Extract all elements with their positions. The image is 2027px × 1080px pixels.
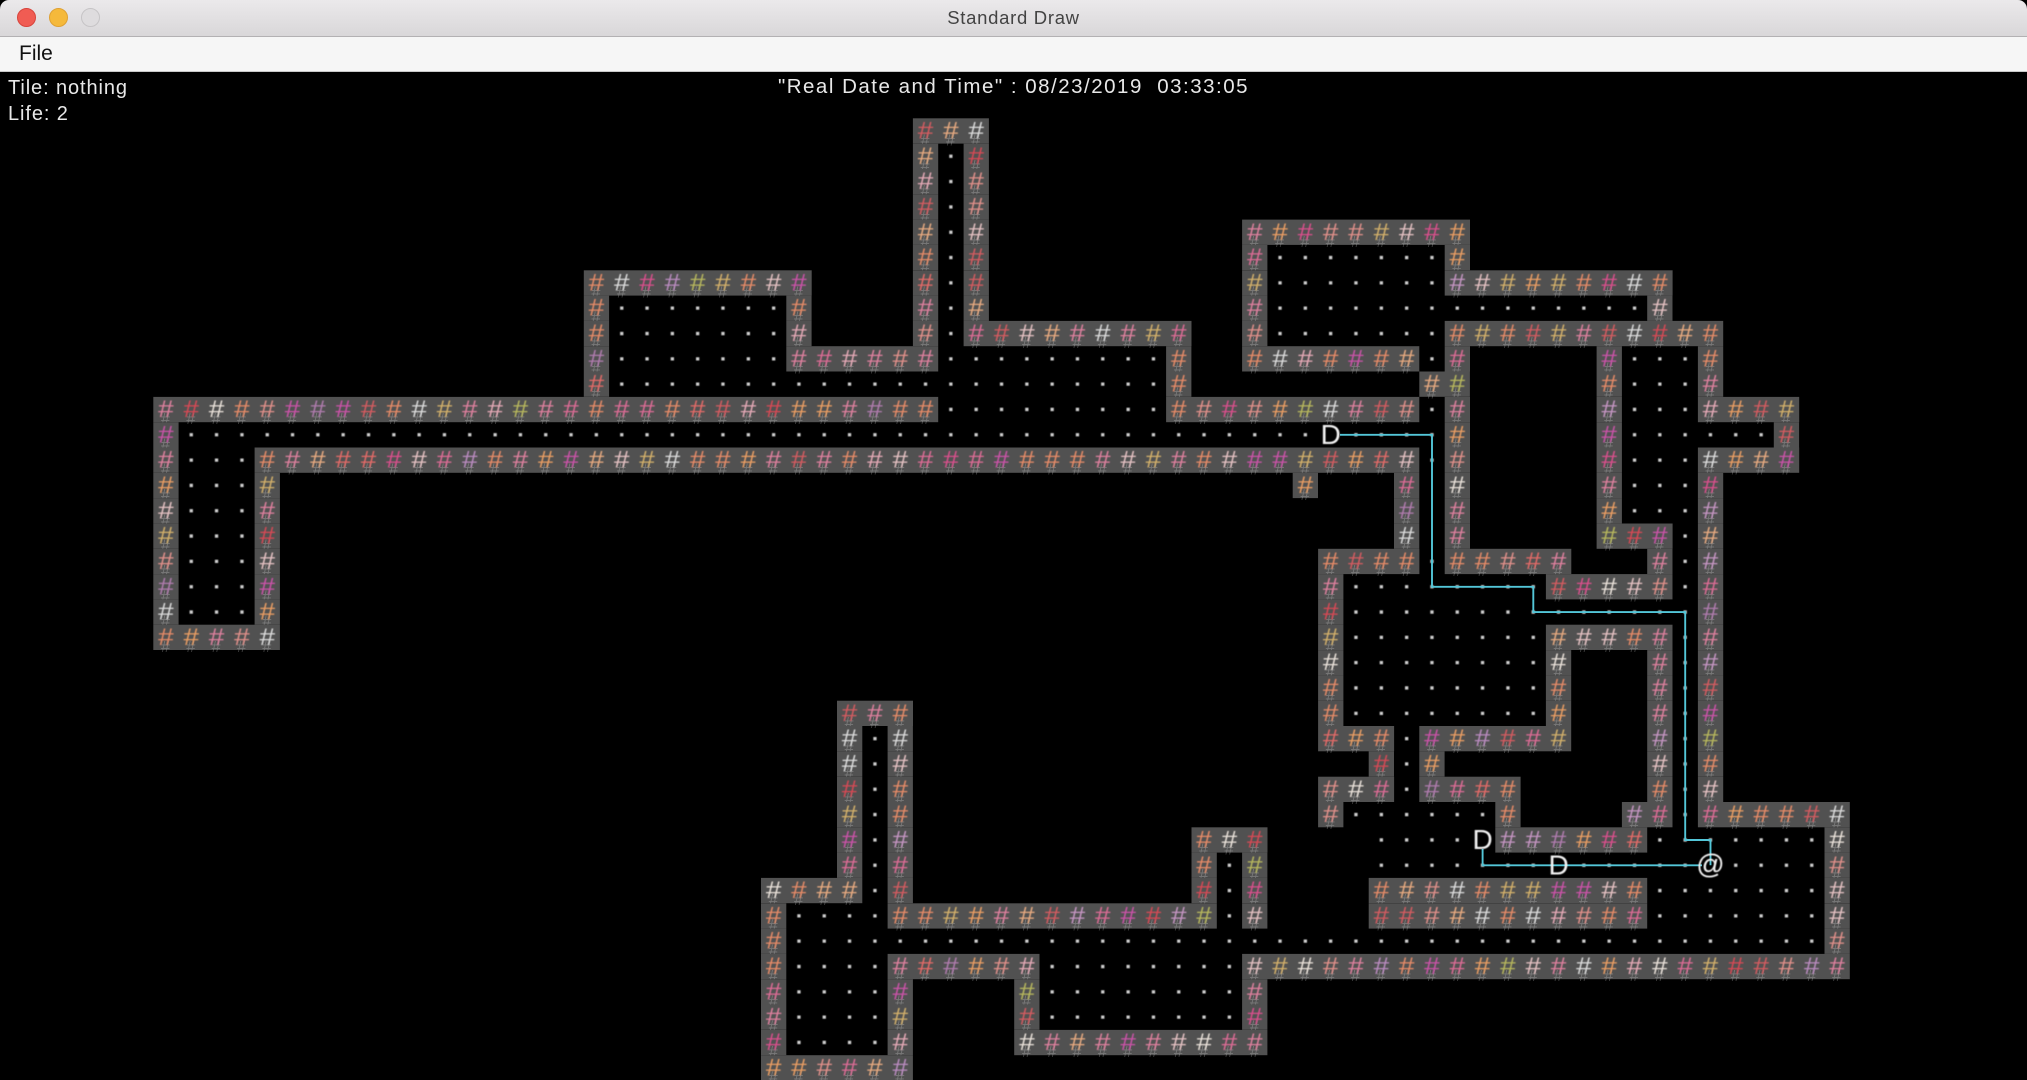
svg-text:#: # (1703, 447, 1719, 474)
svg-text:#: # (1551, 548, 1567, 575)
svg-text:#: # (1652, 776, 1668, 803)
svg-text:#: # (1323, 345, 1339, 372)
svg-text:#: # (1348, 953, 1364, 980)
svg-text:#: # (766, 953, 782, 980)
svg-text:#: # (361, 396, 377, 423)
svg-text:#: # (1500, 269, 1516, 296)
svg-text:#: # (1272, 953, 1288, 980)
svg-text:#: # (1070, 1029, 1086, 1056)
svg-text:#: # (893, 345, 909, 372)
svg-text:#: # (1551, 573, 1567, 600)
svg-text:#: # (1247, 219, 1263, 246)
svg-text:#: # (1374, 447, 1390, 474)
svg-text:#: # (1247, 1004, 1263, 1031)
svg-text:#: # (1450, 371, 1466, 398)
svg-text:#: # (1779, 801, 1795, 828)
svg-text:#: # (639, 269, 655, 296)
svg-text:#: # (1171, 320, 1187, 347)
svg-text:#: # (1298, 953, 1314, 980)
svg-text:#: # (1450, 877, 1466, 904)
svg-text:#: # (1601, 953, 1617, 980)
svg-text:#: # (1627, 624, 1643, 651)
svg-text:#: # (1551, 624, 1567, 651)
svg-text:#: # (1247, 345, 1263, 372)
svg-text:#: # (893, 447, 909, 474)
svg-text:#: # (817, 396, 833, 423)
svg-text:#: # (1475, 548, 1491, 575)
svg-text:#: # (994, 320, 1010, 347)
svg-text:#: # (1703, 472, 1719, 499)
svg-text:#: # (1652, 523, 1668, 550)
svg-text:#: # (1500, 725, 1516, 752)
svg-text:#: # (918, 244, 934, 271)
svg-text:#: # (614, 447, 630, 474)
svg-text:#: # (158, 523, 174, 550)
svg-text:#: # (1399, 523, 1415, 550)
svg-text:#: # (1196, 902, 1212, 929)
svg-text:#: # (260, 447, 276, 474)
svg-text:#: # (158, 447, 174, 474)
svg-text:#: # (158, 573, 174, 600)
svg-text:#: # (842, 447, 858, 474)
svg-text:#: # (1095, 1029, 1111, 1056)
svg-text:#: # (1019, 978, 1035, 1005)
svg-text:#: # (1627, 953, 1643, 980)
svg-text:#: # (1196, 827, 1212, 854)
svg-text:#: # (1450, 472, 1466, 499)
svg-text:#: # (386, 447, 402, 474)
svg-text:#: # (842, 776, 858, 803)
svg-text:#: # (1146, 902, 1162, 929)
svg-text:#: # (1298, 345, 1314, 372)
svg-text:#: # (1601, 827, 1617, 854)
svg-text:#: # (234, 396, 250, 423)
svg-text:#: # (1374, 548, 1390, 575)
svg-text:#: # (1374, 953, 1390, 980)
svg-text:#: # (260, 573, 276, 600)
svg-text:#: # (1779, 396, 1795, 423)
svg-text:#: # (1399, 219, 1415, 246)
svg-text:#: # (893, 725, 909, 752)
svg-text:#: # (1450, 497, 1466, 524)
svg-text:#: # (1677, 953, 1693, 980)
svg-text:#: # (893, 700, 909, 727)
svg-text:#: # (842, 725, 858, 752)
svg-text:#: # (968, 194, 984, 221)
svg-text:#: # (893, 1029, 909, 1056)
svg-text:#: # (260, 497, 276, 524)
svg-text:#: # (1652, 573, 1668, 600)
svg-text:#: # (1323, 624, 1339, 651)
svg-text:#: # (1703, 953, 1719, 980)
svg-text:#: # (893, 902, 909, 929)
svg-text:#: # (639, 447, 655, 474)
svg-text:#: # (1526, 902, 1542, 929)
svg-text:#: # (968, 118, 984, 145)
svg-text:#: # (589, 320, 605, 347)
svg-text:#: # (1424, 751, 1440, 778)
svg-text:#: # (1095, 902, 1111, 929)
svg-text:#: # (1196, 877, 1212, 904)
svg-text:#: # (1424, 877, 1440, 904)
svg-text:#: # (1703, 320, 1719, 347)
svg-text:#: # (589, 371, 605, 398)
svg-text:#: # (1247, 978, 1263, 1005)
svg-text:#: # (791, 877, 807, 904)
svg-text:#: # (1526, 877, 1542, 904)
svg-text:D: D (1548, 849, 1568, 880)
svg-text:#: # (1475, 320, 1491, 347)
svg-text:#: # (1450, 421, 1466, 448)
svg-text:#: # (1450, 447, 1466, 474)
svg-text:#: # (1804, 801, 1820, 828)
svg-text:#: # (741, 447, 757, 474)
svg-text:#: # (1652, 700, 1668, 727)
svg-text:#: # (158, 548, 174, 575)
svg-text:#: # (1399, 447, 1415, 474)
svg-text:#: # (1323, 548, 1339, 575)
svg-text:#: # (1652, 751, 1668, 778)
svg-text:#: # (1601, 902, 1617, 929)
svg-text:#: # (1424, 371, 1440, 398)
svg-text:#: # (867, 447, 883, 474)
svg-text:#: # (1222, 1029, 1238, 1056)
svg-text:#: # (1601, 624, 1617, 651)
svg-text:#: # (1753, 801, 1769, 828)
svg-text:#: # (1247, 396, 1263, 423)
svg-text:#: # (1044, 902, 1060, 929)
svg-text:#: # (1627, 573, 1643, 600)
svg-text:#: # (158, 396, 174, 423)
svg-text:#: # (1601, 269, 1617, 296)
svg-text:#: # (715, 269, 731, 296)
svg-text:#: # (968, 269, 984, 296)
svg-text:#: # (842, 700, 858, 727)
svg-text:#: # (842, 827, 858, 854)
svg-text:#: # (487, 447, 503, 474)
svg-text:#: # (1829, 827, 1845, 854)
svg-text:#: # (791, 345, 807, 372)
svg-text:#: # (1374, 345, 1390, 372)
svg-text:#: # (1171, 396, 1187, 423)
svg-text:#: # (260, 548, 276, 575)
svg-text:#: # (310, 447, 326, 474)
svg-text:#: # (1222, 396, 1238, 423)
svg-text:#: # (1196, 447, 1212, 474)
svg-text:#: # (1247, 447, 1263, 474)
svg-text:#: # (1829, 902, 1845, 929)
svg-text:#: # (1703, 725, 1719, 752)
svg-text:#: # (968, 320, 984, 347)
svg-text:#: # (614, 269, 630, 296)
svg-text:#: # (994, 902, 1010, 929)
svg-text:#: # (1829, 801, 1845, 828)
svg-text:#: # (1070, 320, 1086, 347)
svg-text:#: # (1348, 548, 1364, 575)
svg-text:#: # (1576, 320, 1592, 347)
svg-text:#: # (766, 447, 782, 474)
svg-text:#: # (1475, 269, 1491, 296)
svg-text:#: # (1323, 599, 1339, 626)
svg-text:#: # (1247, 827, 1263, 854)
svg-text:#: # (1601, 320, 1617, 347)
svg-text:#: # (1146, 1029, 1162, 1056)
svg-text:#: # (1703, 573, 1719, 600)
svg-text:#: # (1500, 953, 1516, 980)
svg-text:#: # (1019, 447, 1035, 474)
svg-text:#: # (994, 953, 1010, 980)
svg-text:#: # (1374, 751, 1390, 778)
svg-text:#: # (1500, 548, 1516, 575)
svg-text:#: # (943, 118, 959, 145)
svg-text:#: # (1247, 953, 1263, 980)
svg-text:#: # (1450, 725, 1466, 752)
svg-text:#: # (1348, 447, 1364, 474)
svg-text:#: # (1272, 219, 1288, 246)
svg-text:#: # (1272, 345, 1288, 372)
svg-text:#: # (1424, 902, 1440, 929)
svg-text:#: # (1019, 1029, 1035, 1056)
svg-text:#: # (791, 295, 807, 322)
svg-text:#: # (1601, 396, 1617, 423)
svg-text:#: # (158, 497, 174, 524)
svg-text:#: # (589, 396, 605, 423)
svg-text:#: # (1374, 902, 1390, 929)
svg-text:#: # (1399, 345, 1415, 372)
svg-text:#: # (1450, 776, 1466, 803)
svg-text:#: # (158, 421, 174, 448)
svg-text:#: # (1652, 649, 1668, 676)
svg-text:#: # (361, 447, 377, 474)
svg-text:#: # (1450, 396, 1466, 423)
svg-text:#: # (1576, 573, 1592, 600)
svg-text:#: # (1424, 219, 1440, 246)
svg-text:#: # (1703, 700, 1719, 727)
svg-text:#: # (209, 624, 225, 651)
svg-text:#: # (1120, 320, 1136, 347)
svg-text:#: # (918, 953, 934, 980)
svg-text:#: # (1019, 953, 1035, 980)
svg-text:#: # (893, 827, 909, 854)
svg-text:#: # (690, 269, 706, 296)
svg-text:#: # (1247, 852, 1263, 879)
svg-text:#: # (893, 1054, 909, 1080)
svg-text:#: # (918, 396, 934, 423)
svg-text:#: # (158, 624, 174, 651)
svg-text:#: # (1196, 852, 1212, 879)
svg-text:#: # (842, 877, 858, 904)
svg-text:#: # (918, 194, 934, 221)
svg-text:#: # (1728, 801, 1744, 828)
svg-text:#: # (1576, 877, 1592, 904)
svg-text:#: # (1526, 320, 1542, 347)
svg-text:#: # (1601, 371, 1617, 398)
svg-text:#: # (1323, 953, 1339, 980)
svg-text:#: # (1652, 320, 1668, 347)
svg-text:#: # (968, 953, 984, 980)
svg-text:#: # (285, 447, 301, 474)
svg-text:#: # (589, 447, 605, 474)
svg-text:#: # (1196, 1029, 1212, 1056)
svg-text:#: # (1374, 776, 1390, 803)
svg-text:#: # (1374, 219, 1390, 246)
svg-text:#: # (1677, 320, 1693, 347)
svg-text:#: # (1095, 320, 1111, 347)
svg-text:#: # (1703, 649, 1719, 676)
svg-text:#: # (968, 902, 984, 929)
svg-text:#: # (1044, 447, 1060, 474)
svg-text:#: # (1374, 725, 1390, 752)
svg-text:#: # (1526, 725, 1542, 752)
svg-text:#: # (1399, 472, 1415, 499)
svg-text:#: # (1627, 827, 1643, 854)
svg-text:#: # (1323, 776, 1339, 803)
svg-text:#: # (918, 118, 934, 145)
svg-text:#: # (462, 396, 478, 423)
svg-text:#: # (1146, 320, 1162, 347)
svg-text:#: # (1450, 320, 1466, 347)
svg-text:#: # (1551, 269, 1567, 296)
svg-text:#: # (1829, 852, 1845, 879)
svg-text:#: # (918, 219, 934, 246)
svg-text:#: # (1576, 269, 1592, 296)
svg-text:#: # (791, 447, 807, 474)
svg-text:#: # (1323, 649, 1339, 676)
svg-text:#: # (1551, 649, 1567, 676)
svg-text:#: # (411, 447, 427, 474)
svg-text:#: # (1779, 953, 1795, 980)
svg-text:#: # (1399, 548, 1415, 575)
svg-text:#: # (1298, 447, 1314, 474)
svg-text:#: # (1627, 902, 1643, 929)
svg-text:#: # (437, 447, 453, 474)
svg-text:#: # (1247, 1029, 1263, 1056)
svg-text:#: # (1374, 877, 1390, 904)
svg-text:#: # (943, 447, 959, 474)
svg-text:#: # (1247, 295, 1263, 322)
svg-text:#: # (817, 447, 833, 474)
svg-text:#: # (1526, 953, 1542, 980)
svg-text:#: # (918, 295, 934, 322)
svg-text:#: # (842, 1054, 858, 1080)
svg-text:#: # (260, 523, 276, 550)
svg-text:#: # (817, 1054, 833, 1080)
svg-text:#: # (1703, 776, 1719, 803)
svg-text:#: # (1703, 497, 1719, 524)
svg-text:#: # (462, 447, 478, 474)
svg-text:#: # (1779, 421, 1795, 448)
svg-text:#: # (893, 877, 909, 904)
svg-text:#: # (411, 396, 427, 423)
svg-text:#: # (1450, 244, 1466, 271)
svg-text:#: # (968, 244, 984, 271)
svg-text:#: # (1804, 953, 1820, 980)
svg-text:#: # (1298, 472, 1314, 499)
svg-text:#: # (260, 599, 276, 626)
svg-text:#: # (1247, 877, 1263, 904)
svg-text:#: # (665, 447, 681, 474)
svg-text:#: # (639, 396, 655, 423)
svg-text:#: # (1475, 902, 1491, 929)
svg-text:#: # (741, 396, 757, 423)
svg-text:#: # (791, 1054, 807, 1080)
svg-text:#: # (817, 345, 833, 372)
svg-text:#: # (1399, 953, 1415, 980)
svg-text:#: # (1551, 700, 1567, 727)
svg-text:#: # (968, 295, 984, 322)
svg-text:#: # (1753, 396, 1769, 423)
svg-text:#: # (1475, 725, 1491, 752)
svg-text:#: # (893, 978, 909, 1005)
svg-text:#: # (1652, 953, 1668, 980)
svg-text:#: # (1095, 447, 1111, 474)
svg-text:#: # (968, 168, 984, 195)
svg-text:#: # (1298, 219, 1314, 246)
svg-text:#: # (1323, 573, 1339, 600)
svg-text:#: # (893, 751, 909, 778)
svg-text:#: # (1019, 902, 1035, 929)
svg-text:#: # (766, 1029, 782, 1056)
svg-text:#: # (1247, 269, 1263, 296)
svg-text:#: # (1601, 345, 1617, 372)
svg-text:#: # (741, 269, 757, 296)
svg-text:#: # (665, 269, 681, 296)
svg-text:#: # (589, 345, 605, 372)
svg-text:#: # (1500, 776, 1516, 803)
svg-text:#: # (1551, 725, 1567, 752)
svg-text:#: # (487, 396, 503, 423)
svg-text:#: # (1272, 447, 1288, 474)
svg-text:#: # (1323, 675, 1339, 702)
svg-text:#: # (867, 345, 883, 372)
svg-text:#: # (893, 776, 909, 803)
svg-text:#: # (1576, 827, 1592, 854)
svg-text:#: # (1120, 447, 1136, 474)
svg-text:#: # (1779, 447, 1795, 474)
svg-text:#: # (1703, 801, 1719, 828)
svg-text:#: # (1652, 725, 1668, 752)
svg-text:#: # (1627, 801, 1643, 828)
svg-text:#: # (690, 396, 706, 423)
svg-text:#: # (1450, 953, 1466, 980)
svg-text:#: # (1576, 624, 1592, 651)
svg-text:#: # (1424, 725, 1440, 752)
svg-text:#: # (538, 447, 554, 474)
svg-text:#: # (791, 320, 807, 347)
svg-text:#: # (1652, 269, 1668, 296)
svg-text:#: # (1576, 953, 1592, 980)
svg-text:#: # (1551, 953, 1567, 980)
svg-text:#: # (310, 396, 326, 423)
svg-text:#: # (260, 624, 276, 651)
svg-text:#: # (513, 447, 529, 474)
svg-text:#: # (1272, 396, 1288, 423)
svg-text:#: # (817, 877, 833, 904)
svg-text:#: # (893, 852, 909, 879)
svg-text:#: # (867, 1054, 883, 1080)
svg-text:#: # (1500, 801, 1516, 828)
svg-text:#: # (1627, 877, 1643, 904)
svg-text:#: # (1551, 877, 1567, 904)
svg-text:#: # (1500, 320, 1516, 347)
svg-text:#: # (766, 1004, 782, 1031)
svg-text:#: # (1399, 902, 1415, 929)
svg-text:#: # (867, 396, 883, 423)
svg-text:#: # (968, 143, 984, 170)
svg-text:#: # (918, 447, 934, 474)
svg-text:#: # (1753, 953, 1769, 980)
svg-text:#: # (1450, 548, 1466, 575)
